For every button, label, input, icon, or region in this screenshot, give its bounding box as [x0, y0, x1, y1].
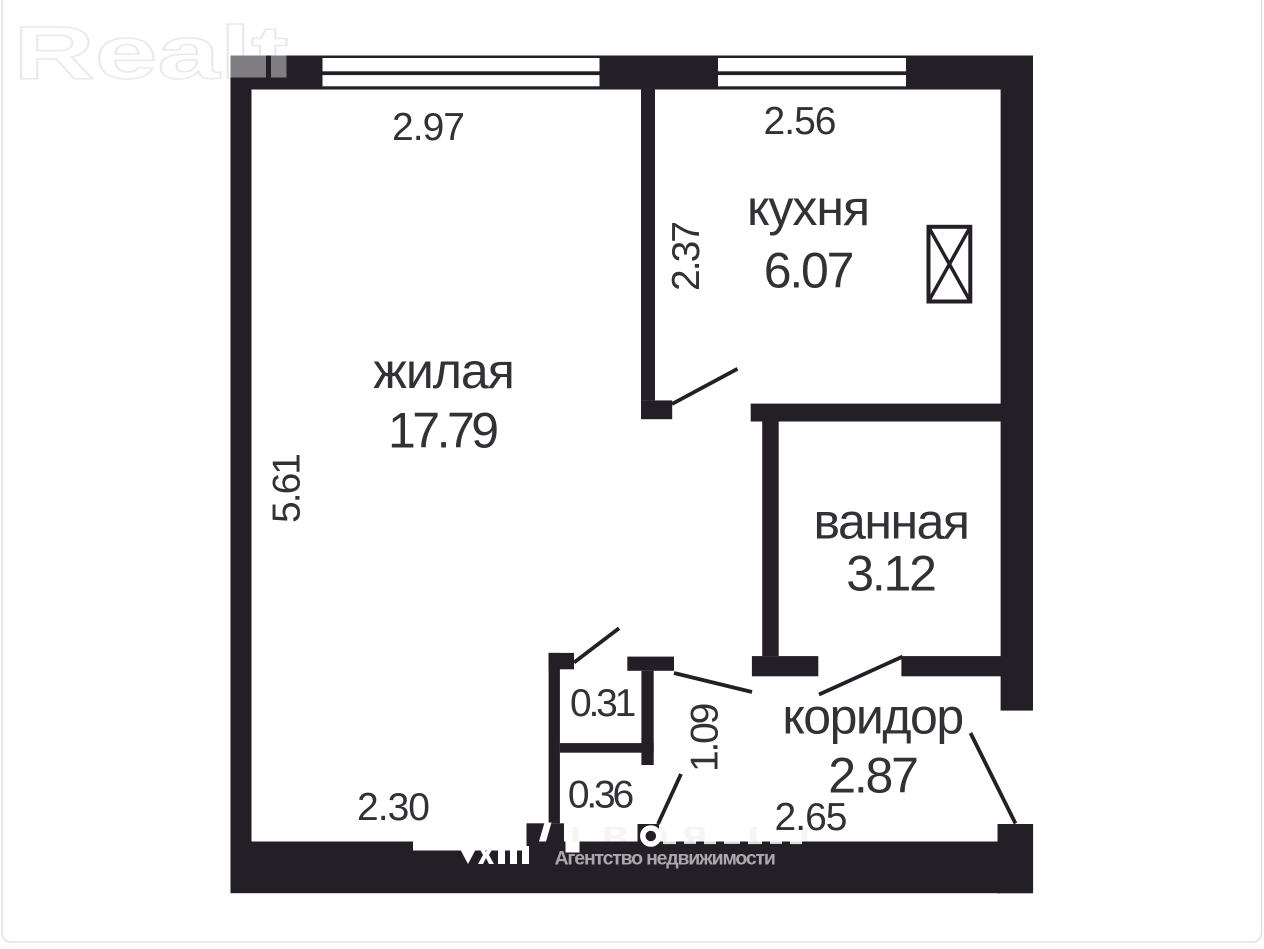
svg-text:Агентство недвижимости: Агентство недвижимости [555, 848, 775, 870]
svg-text:2.30: 2.30 [357, 786, 429, 829]
svg-text:2.37: 2.37 [665, 223, 708, 291]
svg-text:3.12: 3.12 [846, 545, 935, 601]
svg-text:2.97: 2.97 [392, 106, 464, 149]
svg-text:2.56: 2.56 [764, 100, 836, 143]
svg-text:1.09: 1.09 [684, 704, 727, 772]
svg-text:5.61: 5.61 [266, 455, 309, 523]
svg-text:17.79: 17.79 [388, 403, 497, 459]
svg-text:6.07: 6.07 [764, 242, 853, 298]
svg-text:ванная: ванная [814, 494, 969, 550]
svg-text:кухня: кухня [747, 180, 869, 236]
svg-text:0.31: 0.31 [570, 682, 635, 725]
svg-text:коридор: коридор [782, 689, 962, 745]
svg-text:0.36: 0.36 [568, 774, 633, 817]
svg-text:жилая: жилая [373, 343, 513, 399]
